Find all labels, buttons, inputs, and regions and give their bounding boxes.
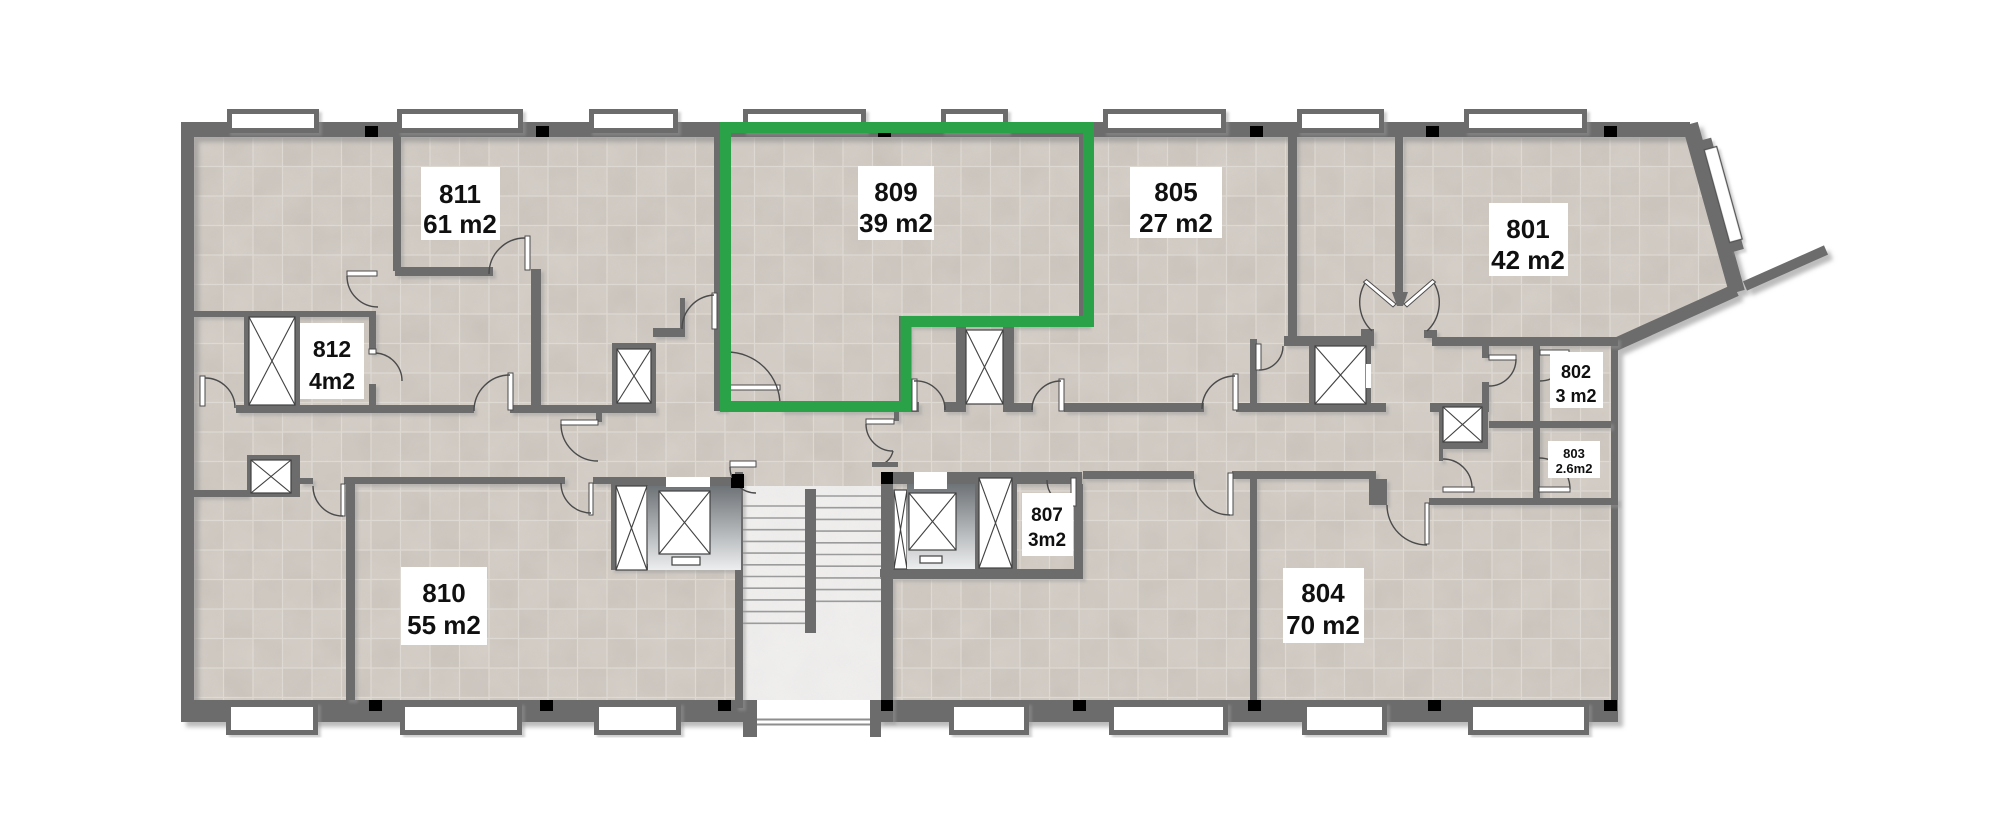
svg-text:2.6m2: 2.6m2 bbox=[1556, 461, 1593, 476]
svg-text:805: 805 bbox=[1154, 177, 1197, 207]
svg-text:803: 803 bbox=[1563, 446, 1585, 461]
svg-text:42 m2: 42 m2 bbox=[1491, 245, 1565, 275]
svg-text:27 m2: 27 m2 bbox=[1139, 208, 1213, 238]
svg-text:809: 809 bbox=[874, 177, 917, 207]
svg-text:811: 811 bbox=[439, 179, 481, 209]
svg-text:3 m2: 3 m2 bbox=[1555, 386, 1596, 406]
svg-text:802: 802 bbox=[1561, 362, 1591, 382]
svg-text:3m2: 3m2 bbox=[1028, 530, 1066, 551]
svg-text:61 m2: 61 m2 bbox=[423, 209, 497, 239]
svg-text:801: 801 bbox=[1506, 214, 1549, 244]
svg-text:39 m2: 39 m2 bbox=[859, 208, 933, 238]
svg-text:810: 810 bbox=[422, 578, 465, 608]
svg-text:4m2: 4m2 bbox=[309, 368, 355, 394]
svg-text:807: 807 bbox=[1031, 505, 1063, 526]
svg-text:55 m2: 55 m2 bbox=[407, 610, 481, 640]
svg-text:804: 804 bbox=[1301, 578, 1345, 608]
svg-text:70 m2: 70 m2 bbox=[1286, 610, 1360, 640]
svg-text:812: 812 bbox=[313, 336, 351, 362]
